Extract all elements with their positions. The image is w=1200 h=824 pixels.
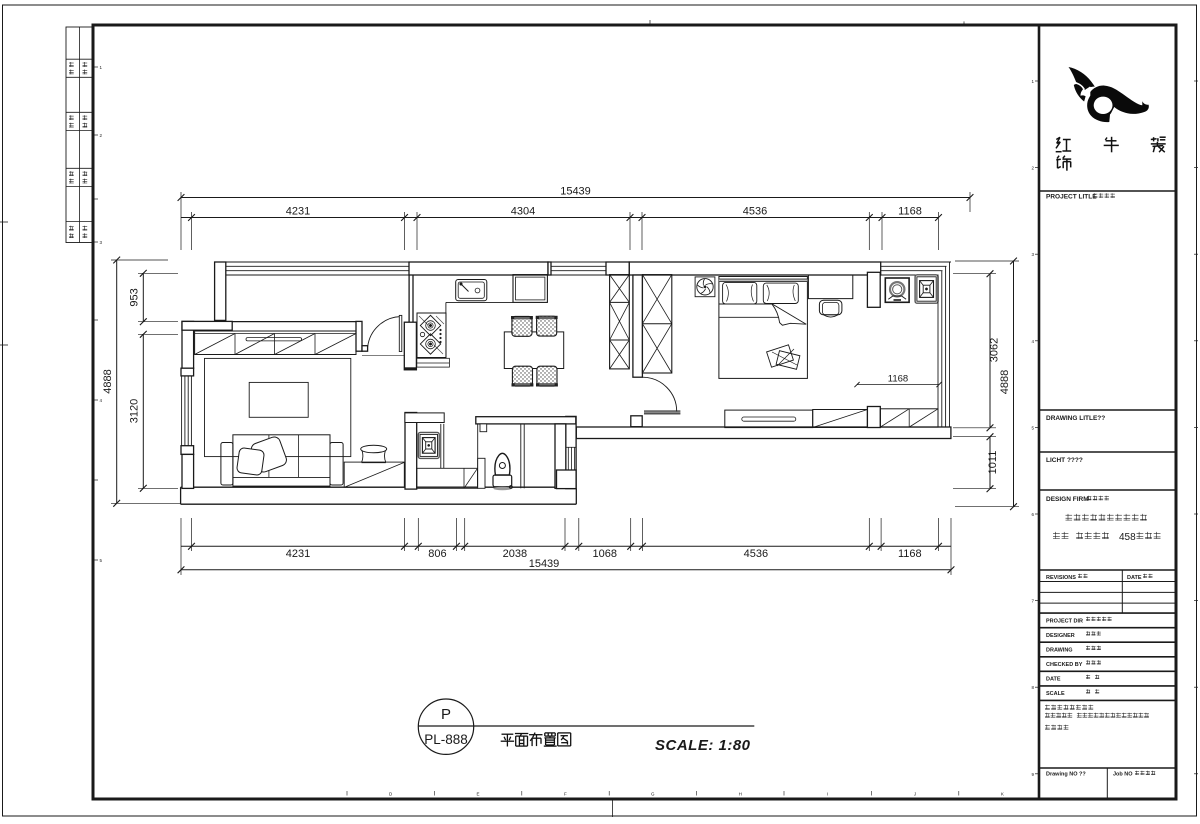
- svg-text:DATE: DATE: [1127, 575, 1142, 581]
- svg-text:15439: 15439: [560, 186, 591, 198]
- svg-text:4536: 4536: [744, 548, 768, 560]
- svg-text:3120: 3120: [129, 399, 141, 423]
- svg-text:E: E: [476, 792, 479, 797]
- svg-text:DRAWING: DRAWING: [1046, 648, 1073, 654]
- svg-text:DATE: DATE: [1046, 677, 1061, 683]
- svg-text:1168: 1168: [898, 206, 922, 218]
- svg-text:1011: 1011: [987, 451, 999, 475]
- svg-text:DESIGN FIRM: DESIGN FIRM: [1046, 496, 1089, 503]
- svg-text:PL-888: PL-888: [424, 732, 468, 747]
- svg-text:953: 953: [129, 288, 141, 306]
- svg-text:SCALE: SCALE: [1046, 691, 1065, 697]
- svg-text:K: K: [1001, 792, 1004, 797]
- svg-text:P: P: [441, 706, 451, 723]
- svg-text:LICHT ????: LICHT ????: [1046, 457, 1083, 464]
- svg-text:CHECKED BY: CHECKED BY: [1046, 662, 1083, 668]
- svg-text:4888: 4888: [999, 370, 1011, 394]
- svg-text:1168: 1168: [898, 548, 922, 560]
- svg-text:SCALE: 1:80: SCALE: 1:80: [655, 737, 751, 754]
- svg-text:F: F: [564, 792, 567, 797]
- svg-text:DESIGNER: DESIGNER: [1046, 633, 1075, 639]
- svg-text:PROJECT LITLE: PROJECT LITLE: [1046, 194, 1097, 201]
- svg-text:H: H: [739, 792, 742, 797]
- svg-text:4231: 4231: [286, 548, 310, 560]
- svg-text:Job NO: Job NO: [1113, 772, 1133, 778]
- svg-text:I: I: [827, 792, 828, 797]
- svg-text:J: J: [914, 792, 916, 797]
- svg-text:4536: 4536: [743, 206, 767, 218]
- svg-text:3062: 3062: [989, 338, 1001, 362]
- svg-text:15439: 15439: [529, 558, 560, 570]
- svg-text:1168: 1168: [888, 374, 908, 385]
- svg-text:Drawing NO ??: Drawing NO ??: [1046, 772, 1086, 778]
- svg-text:806: 806: [428, 548, 446, 560]
- svg-text:4888: 4888: [102, 369, 114, 393]
- svg-text:1068: 1068: [593, 548, 617, 560]
- svg-text:2038: 2038: [503, 548, 527, 560]
- svg-text:4231: 4231: [286, 206, 310, 218]
- svg-text:REVISIONS: REVISIONS: [1046, 575, 1076, 581]
- svg-text:4304: 4304: [511, 206, 535, 218]
- svg-text:DRAWING LITLE??: DRAWING LITLE??: [1046, 415, 1105, 422]
- svg-text:PROJECT DIR: PROJECT DIR: [1046, 619, 1083, 625]
- svg-text:458: 458: [1119, 532, 1136, 543]
- svg-text:G: G: [651, 792, 655, 797]
